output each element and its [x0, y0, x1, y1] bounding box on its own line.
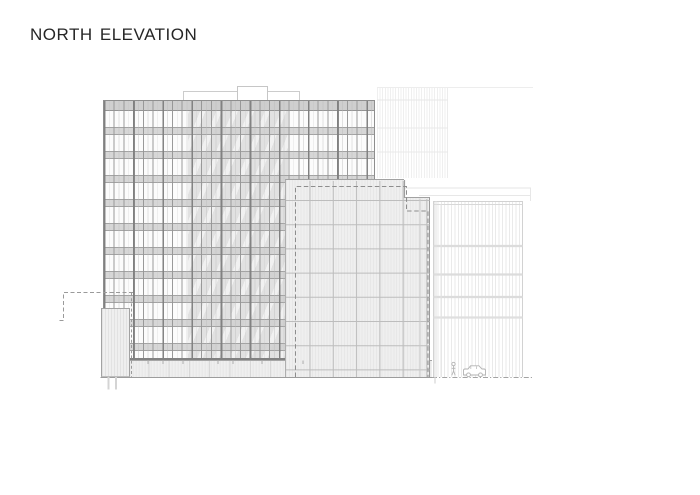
foreground-panel-grid	[286, 180, 430, 377]
pedestrian-figure	[452, 362, 456, 375]
below-grade-marks	[109, 377, 436, 390]
linework-overlay	[0, 0, 700, 495]
right-building-floor-lines	[434, 201, 523, 377]
drawing-title: NORTH ELEVATION	[30, 25, 197, 45]
facade-base-ticks	[148, 361, 303, 365]
car-figure	[464, 366, 486, 377]
background-roof-lines	[377, 88, 533, 202]
elevation-drawing-canvas: NORTH ELEVATION	[0, 0, 700, 495]
dashed-parapet-outlines	[57, 187, 428, 378]
